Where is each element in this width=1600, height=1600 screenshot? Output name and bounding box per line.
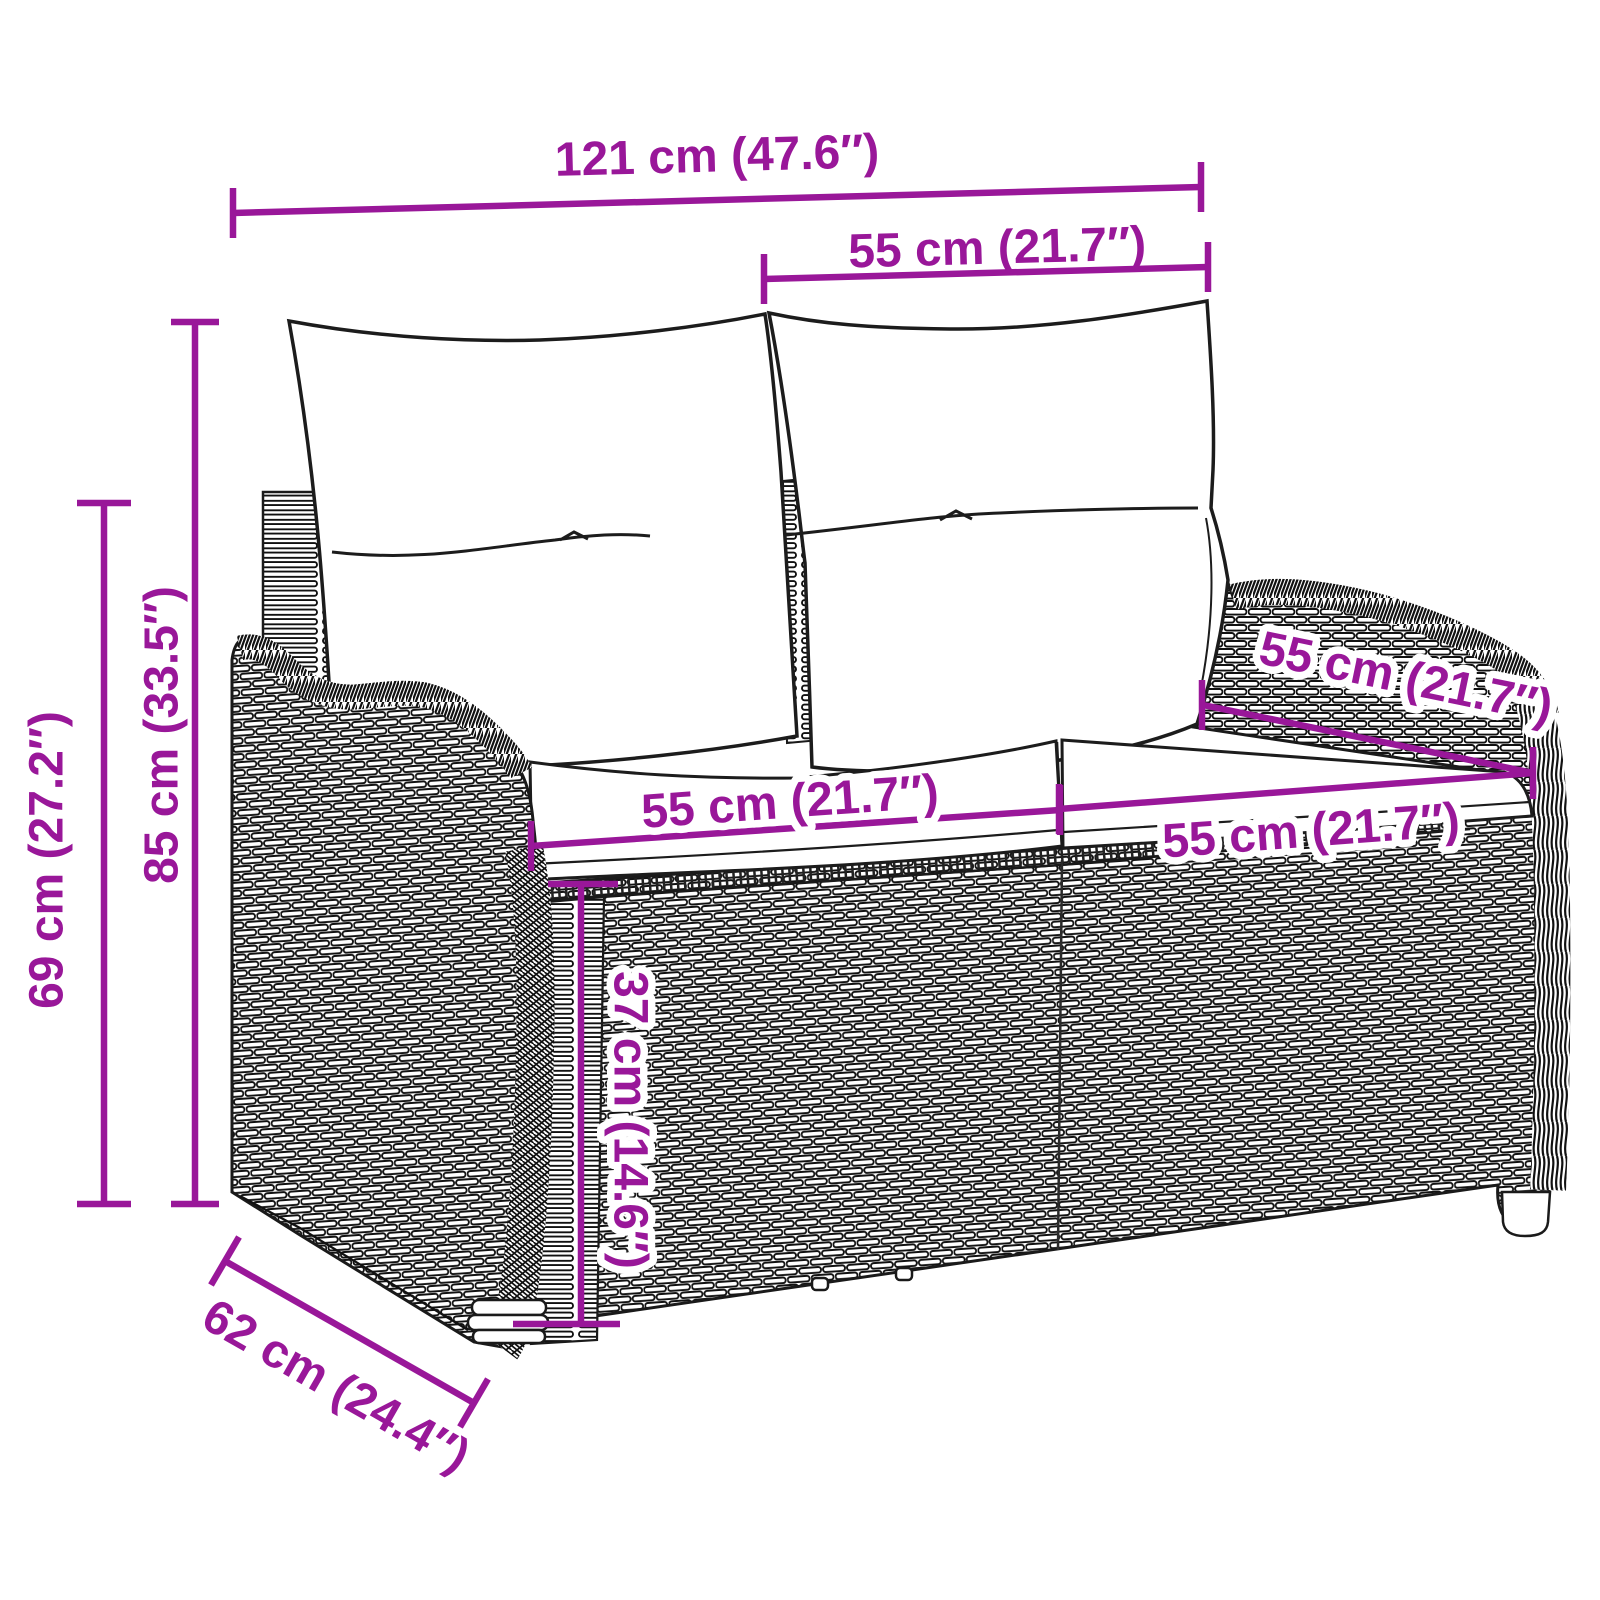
svg-text:37 cm (14.6″): 37 cm (14.6″) [604,971,657,1269]
svg-text:85 cm (33.5″): 85 cm (33.5″) [136,586,189,884]
svg-text:69 cm (27.2″): 69 cm (27.2″) [21,711,74,1009]
svg-text:121 cm (47.6″): 121 cm (47.6″) [554,125,880,187]
svg-text:55 cm (21.7″): 55 cm (21.7″) [848,217,1147,278]
